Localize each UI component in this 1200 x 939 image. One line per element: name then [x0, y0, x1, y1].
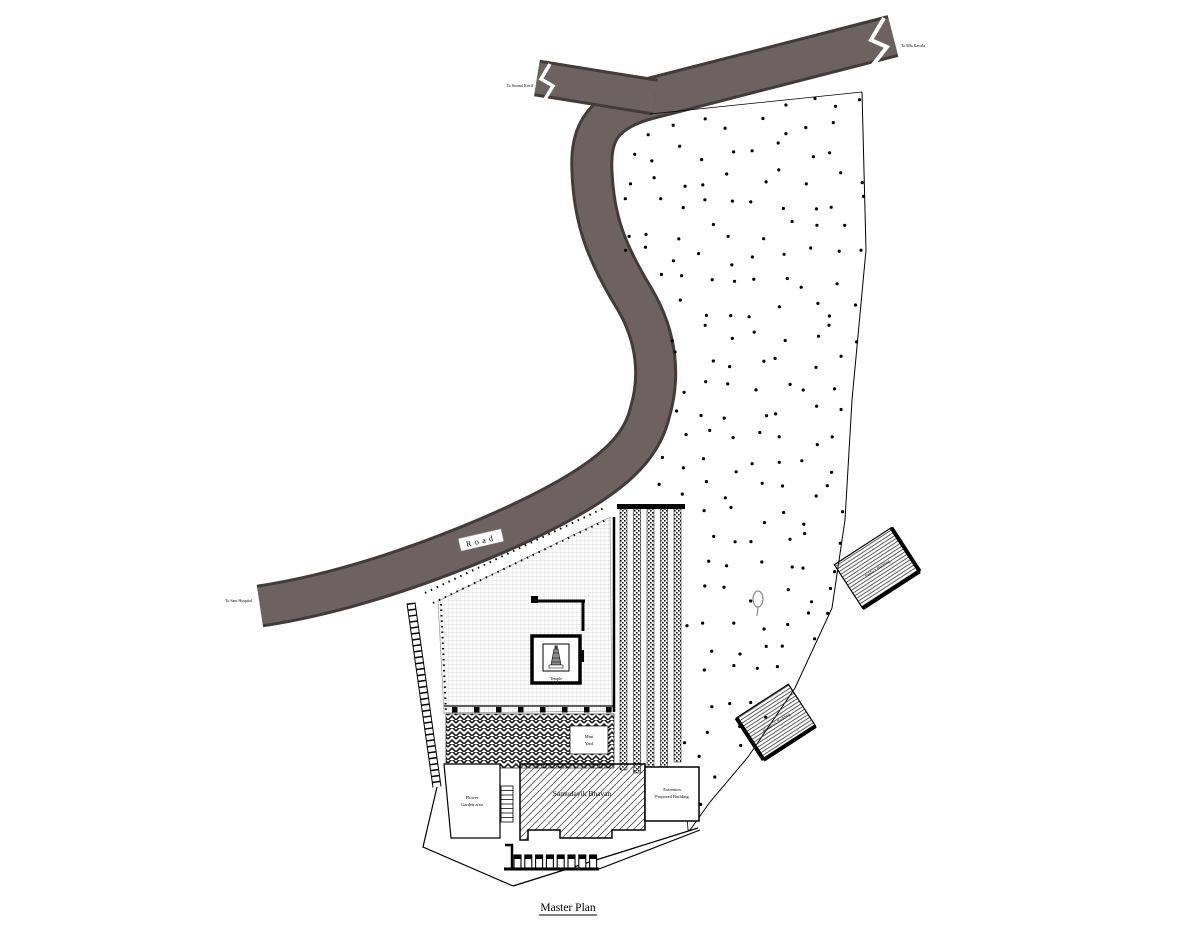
planting-dot	[672, 259, 675, 262]
planting-dots	[624, 97, 865, 806]
destination-w-label: To Sant Hospital	[225, 598, 253, 603]
planting-dot	[840, 408, 843, 411]
planting-dot	[787, 588, 790, 591]
planting-dot	[749, 540, 752, 543]
planting-dot	[647, 133, 650, 136]
planting-dot	[724, 496, 727, 499]
planting-dot	[711, 278, 714, 281]
planting-dot	[763, 627, 766, 630]
planting-dot	[778, 461, 781, 464]
planting-dot	[738, 652, 741, 655]
gate-post-cap	[514, 855, 521, 859]
planting-dot	[624, 197, 627, 200]
planting-dot	[765, 180, 768, 183]
gate-post-cap	[568, 855, 575, 859]
boundary-post	[606, 707, 612, 713]
planting-dot	[782, 207, 785, 210]
planting-dot	[753, 331, 756, 334]
boundary-post	[496, 707, 502, 713]
planting-dot	[784, 103, 787, 106]
gate-post-cap	[579, 855, 586, 859]
planting-dot	[830, 206, 833, 209]
planting-dot	[749, 599, 752, 602]
planting-dot	[859, 249, 862, 252]
planting-dot	[813, 97, 816, 100]
planting-dot	[700, 414, 703, 417]
planting-dot	[816, 443, 819, 446]
planting-dot	[830, 471, 833, 474]
planting-dot	[801, 567, 804, 570]
planting-dot	[761, 482, 764, 485]
planting-dot	[732, 436, 735, 439]
planting-dot	[713, 775, 716, 778]
planting-dot	[739, 744, 742, 747]
planting-dot	[778, 305, 781, 308]
planting-dot	[810, 600, 813, 603]
planting-dot	[800, 459, 803, 462]
planting-dot	[800, 286, 803, 289]
planting-dot	[861, 181, 864, 184]
mini-yard-label-box	[570, 726, 608, 754]
planting-dot	[703, 668, 706, 671]
temple-door-tab	[579, 650, 584, 662]
planting-dot	[748, 315, 751, 318]
mini-yard: Mini Yard	[446, 714, 614, 768]
temple-label: Temple	[550, 676, 562, 681]
temple: Temple	[532, 636, 584, 683]
planting-dot	[678, 145, 681, 148]
planting-dot	[839, 171, 842, 174]
planting-dot	[838, 250, 841, 253]
drawing-title: Master Plan	[540, 902, 596, 914]
planting-dot	[829, 587, 832, 590]
extension-label-line2: Proposed Building	[655, 794, 689, 799]
gate-post-cap	[546, 855, 553, 859]
planting-dot	[658, 483, 661, 486]
planting-dot	[781, 484, 784, 487]
planting-dot	[727, 235, 730, 238]
planting-dot	[729, 506, 732, 509]
planting-dot	[774, 357, 777, 360]
planting-dot	[712, 359, 715, 362]
planting-dot	[712, 535, 715, 538]
planting-dot	[760, 560, 763, 563]
planting-dot	[728, 365, 731, 368]
planting-dot	[679, 299, 682, 302]
planting-dot	[733, 280, 736, 283]
samudayik-bhavan-label: Samudayik Bhavan	[553, 789, 612, 798]
planting-dot	[704, 117, 707, 120]
planting-dot	[685, 624, 688, 627]
planting-dot	[703, 509, 706, 512]
planting-dot	[680, 274, 683, 277]
planting-dot	[701, 622, 704, 625]
mini-yard-label-line1: Mini	[585, 734, 595, 739]
rows-top-cap	[617, 504, 685, 509]
planting-dot	[754, 388, 757, 391]
planting-dot	[681, 493, 684, 496]
planting-dot	[633, 153, 636, 156]
planting-dot	[704, 324, 707, 327]
samudayik-bhavan-building	[520, 764, 645, 840]
road: Road	[260, 18, 893, 606]
planting-dot	[761, 117, 764, 120]
planting-dot	[704, 380, 707, 383]
planting-dot	[788, 538, 791, 541]
planting-dot	[763, 521, 766, 524]
publics-building: Public's Building	[834, 528, 919, 609]
planting-dot	[776, 665, 779, 668]
planting-dot	[812, 155, 815, 158]
mini-yard-label-line2: Yard	[585, 741, 594, 746]
planting-dot	[774, 412, 777, 415]
planting-dot	[809, 246, 812, 249]
road-surface	[260, 36, 893, 606]
planting-dot	[729, 314, 732, 317]
planting-dot	[703, 584, 706, 587]
planting-dot	[841, 510, 844, 513]
planting-dot	[817, 335, 820, 338]
planting-dot	[752, 278, 755, 281]
planting-dot	[854, 303, 857, 306]
planting-dot	[827, 324, 830, 327]
planting-dot	[722, 586, 725, 589]
planting-dot	[732, 622, 735, 625]
buildings: Samudayik Bhavan Extention Proposed Buil…	[444, 764, 699, 840]
planting-dot	[724, 127, 727, 130]
planting-dot	[703, 198, 706, 201]
extension-label-line1: Extention	[663, 787, 681, 792]
mathews-building: Mathew's Building	[736, 684, 815, 760]
planting-dot	[781, 645, 784, 648]
l-wall-post	[531, 596, 538, 603]
planting-dot	[682, 206, 685, 209]
planting-dot	[725, 564, 728, 567]
boundary-post	[562, 707, 568, 713]
planting-dot	[783, 253, 786, 256]
planting-dot	[705, 314, 708, 317]
planting-dot	[765, 414, 768, 417]
planting-dot	[749, 701, 752, 704]
planting-dot	[816, 302, 819, 305]
planting-dot	[674, 350, 677, 353]
planting-dot	[735, 470, 738, 473]
planting-dot	[858, 98, 861, 101]
planting-dot	[661, 456, 664, 459]
tree-icon	[753, 591, 763, 616]
planting-dot	[671, 339, 674, 342]
planting-dot	[815, 494, 818, 497]
planting-dot	[725, 172, 728, 175]
planting-dot	[813, 637, 816, 640]
planted-row-band	[634, 509, 641, 773]
planting-dot	[628, 235, 631, 238]
planting-dot	[734, 540, 737, 543]
destination-ne-label: To Mla Kavala	[901, 43, 925, 48]
master-plan-canvas: Road	[0, 0, 1200, 939]
planting-dot	[765, 645, 768, 648]
planting-dot	[836, 282, 839, 285]
planting-dot	[751, 149, 754, 152]
flower-garden	[444, 764, 500, 838]
planting-dot	[862, 195, 865, 198]
planting-dot	[712, 223, 715, 226]
planting-dot	[762, 237, 765, 240]
planting-dot	[803, 532, 806, 535]
gate-post-row	[514, 855, 597, 868]
gate-post-cap	[525, 855, 532, 859]
planting-dot	[723, 417, 726, 420]
planted-row-band	[647, 509, 654, 768]
planting-dot	[698, 755, 701, 758]
planting-dot	[777, 168, 780, 171]
planting-dot	[802, 388, 805, 391]
planting-dot	[749, 200, 752, 203]
planting-dot	[789, 383, 792, 386]
planting-dot	[683, 391, 686, 394]
planting-dot	[784, 339, 787, 342]
planting-dot	[833, 570, 836, 573]
road-edge-outline	[260, 36, 893, 606]
destination-nw-label: To Swami Kovil	[507, 83, 534, 88]
planting-dot	[777, 141, 780, 144]
planting-dot	[826, 612, 829, 615]
planting-dot	[826, 484, 829, 487]
planting-dot	[784, 132, 787, 135]
gate-post-cap	[536, 855, 543, 859]
planting-dot	[629, 182, 632, 185]
planting-dot	[705, 480, 708, 483]
planting-dot	[708, 429, 711, 432]
planting-dot	[650, 159, 653, 162]
west-boundary-wall	[407, 603, 441, 788]
gate-post-cap	[590, 855, 597, 859]
planting-dot	[731, 200, 734, 203]
planting-dot	[782, 511, 785, 514]
planting-dot	[833, 387, 836, 390]
planting-dot	[660, 273, 663, 276]
flower-garden-label-line2: Garden area	[461, 802, 483, 807]
planting-dot	[786, 623, 789, 626]
planting-dot	[814, 366, 817, 369]
planting-dot	[701, 183, 704, 186]
planting-dot	[834, 105, 837, 108]
planting-dot	[675, 409, 678, 412]
planting-dot	[685, 433, 688, 436]
planting-dot	[644, 233, 647, 236]
planting-dot	[700, 158, 703, 161]
steps-strip	[501, 786, 513, 822]
boundary-post	[540, 707, 546, 713]
boundary-post	[452, 707, 458, 713]
planting-dot	[832, 121, 835, 124]
planting-dot	[786, 277, 789, 280]
planting-dot	[653, 176, 656, 179]
planting-dot	[756, 667, 759, 670]
planting-dot	[659, 197, 662, 200]
planting-dot	[843, 224, 846, 227]
planting-dot	[697, 252, 700, 255]
planting-dot	[707, 560, 710, 563]
planting-dot	[710, 650, 713, 653]
planting-dot	[815, 405, 818, 408]
planting-dot	[710, 705, 713, 708]
planting-dot	[731, 337, 734, 340]
boundary-post	[474, 707, 480, 713]
planting-dot	[751, 462, 754, 465]
planting-dot	[855, 340, 858, 343]
road-stub-surface	[537, 78, 655, 97]
planted-rows	[617, 504, 685, 773]
planting-dot	[682, 466, 685, 469]
planting-dot	[726, 382, 729, 385]
planted-row-band	[661, 509, 668, 772]
planted-row-band	[674, 509, 681, 762]
planting-dot	[840, 355, 843, 358]
planting-dot	[732, 664, 735, 667]
planting-dot	[791, 220, 794, 223]
master-plan-drawing: Road	[0, 0, 1200, 939]
planting-dot	[831, 435, 834, 438]
planting-dot	[728, 702, 731, 705]
gate-post-cap	[557, 855, 564, 859]
planted-row-band	[620, 509, 627, 770]
planting-dot	[702, 457, 705, 460]
planting-dot	[644, 246, 647, 249]
planting-dot	[751, 255, 754, 258]
planting-dot	[684, 185, 687, 188]
planting-dot	[778, 435, 781, 438]
planting-dot	[804, 126, 807, 129]
planting-dot	[839, 542, 842, 545]
planting-dot	[802, 523, 805, 526]
planting-dot	[828, 314, 831, 317]
planting-dot	[624, 249, 627, 252]
planting-dot	[730, 263, 733, 266]
planting-dot	[805, 182, 808, 185]
boundary-post	[518, 707, 524, 713]
boundary-post	[584, 707, 590, 713]
planting-dot	[677, 237, 680, 240]
planting-dot	[706, 731, 709, 734]
planting-dot	[815, 207, 818, 210]
planting-dot	[815, 224, 818, 227]
planting-dot	[683, 741, 686, 744]
planting-dot	[732, 150, 735, 153]
planting-dot	[758, 431, 761, 434]
planting-dot	[807, 611, 810, 614]
planting-dot	[791, 565, 794, 568]
planting-dot	[828, 151, 831, 154]
planting-dot	[672, 124, 675, 127]
flower-garden-label-line1: Flower	[466, 795, 479, 800]
planting-dot	[762, 360, 765, 363]
